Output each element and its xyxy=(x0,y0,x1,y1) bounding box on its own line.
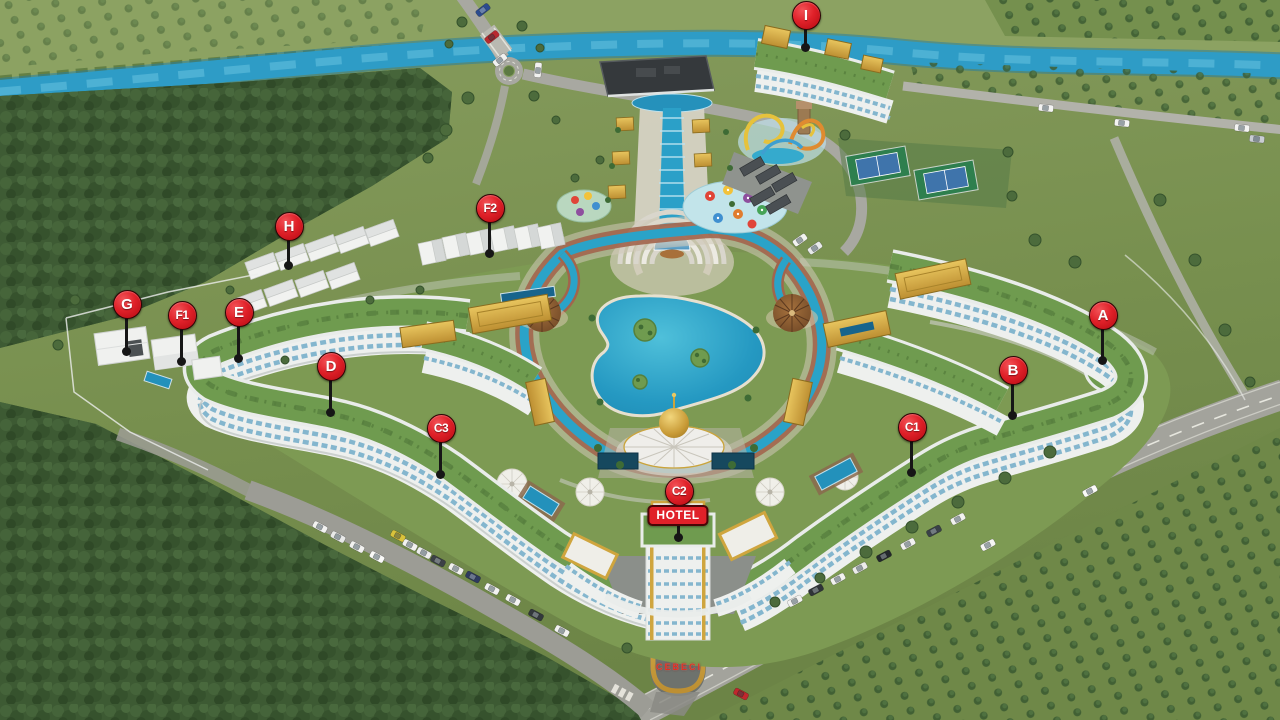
entrance-gate-sign: CEBECI xyxy=(656,662,702,672)
pin-circle: H xyxy=(275,212,304,241)
pin-circle: A xyxy=(1089,301,1118,330)
pin-circle: C1 xyxy=(898,413,927,442)
pin-label: C3 xyxy=(434,422,448,434)
pin-label: I xyxy=(804,8,808,23)
pin-label: F1 xyxy=(175,309,188,321)
pin-label: D xyxy=(326,359,337,374)
pin-label: B xyxy=(1008,363,1019,378)
pin-label: C2 xyxy=(672,485,686,497)
playground xyxy=(557,190,611,222)
pin-label: A xyxy=(1098,308,1109,323)
pin-circle: F2 xyxy=(476,194,505,223)
pin-circle: B xyxy=(999,356,1028,385)
hotel-badge: HOTEL xyxy=(647,505,708,526)
villa-g xyxy=(94,327,150,366)
entrance-building xyxy=(600,56,714,96)
pin-circle: G xyxy=(113,290,142,319)
pin-label: C1 xyxy=(905,421,919,433)
pin-label: G xyxy=(121,297,133,312)
masterplan-scene xyxy=(0,0,1280,720)
pin-circle: C2 xyxy=(665,477,694,506)
pin-label: F2 xyxy=(483,202,496,214)
pin-circle: F1 xyxy=(168,301,197,330)
pin-circle: I xyxy=(792,1,821,30)
pin-label: E xyxy=(234,305,244,320)
pin-circle: D xyxy=(317,352,346,381)
pin-circle: E xyxy=(225,298,254,327)
pin-label: H xyxy=(284,219,295,234)
masterplan-screenshot: ABC1HOTELC2C3DEF1F2GHI CEBECI xyxy=(0,0,1280,720)
pin-circle: C3 xyxy=(427,414,456,443)
